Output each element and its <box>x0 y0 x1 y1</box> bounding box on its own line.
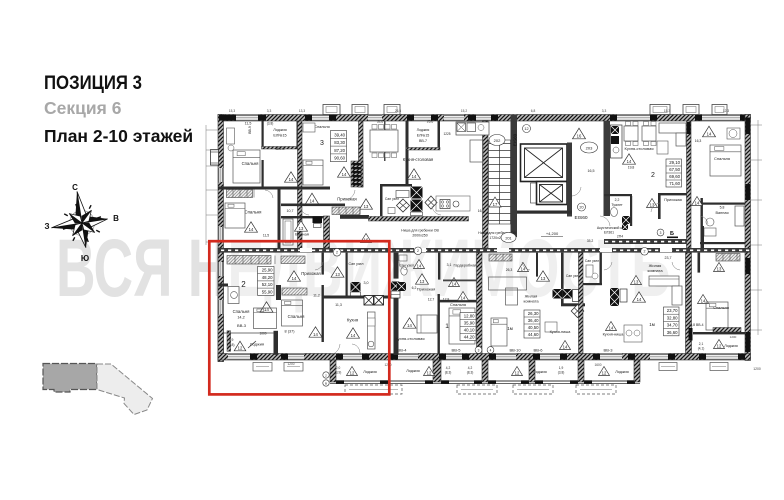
svg-text:Ю: Ю <box>81 254 89 263</box>
svg-text:Прихожая: Прихожая <box>664 198 682 202</box>
svg-text:12: 12 <box>427 370 432 375</box>
svg-text:Туалет: Туалет <box>611 203 623 207</box>
svg-text:Сан узел: Сан узел <box>349 262 364 266</box>
svg-text:Прихожая: Прихожая <box>417 287 436 292</box>
svg-text:35,2: 35,2 <box>587 239 594 243</box>
svg-text:(3,8): (3,8) <box>267 122 274 126</box>
svg-text:14: 14 <box>310 199 315 204</box>
svg-text:23,7: 23,7 <box>665 256 672 260</box>
svg-text:36,40: 36,40 <box>528 318 539 323</box>
svg-text:12,80: 12,80 <box>464 314 475 319</box>
svg-text:комната: комната <box>647 268 663 273</box>
svg-text:Спальня: Спальня <box>233 309 250 314</box>
svg-text:40,10: 40,10 <box>464 328 475 333</box>
svg-text:16: 16 <box>577 134 582 139</box>
svg-text:ВВ-8: ВВ-8 <box>276 146 286 151</box>
svg-text:комната: комната <box>523 299 539 304</box>
svg-text:(3,9): (3,9) <box>335 371 342 375</box>
svg-text:44,60: 44,60 <box>528 332 539 337</box>
svg-text:15,3: 15,3 <box>229 109 235 113</box>
svg-text:8 (37): 8 (37) <box>285 330 296 334</box>
svg-text:Ниша для гребенки ОВ: Ниша для гребенки ОВ <box>401 229 439 233</box>
svg-text:Прихожая: Прихожая <box>301 271 320 276</box>
svg-text:Спальня: Спальня <box>713 305 729 310</box>
svg-text:12: 12 <box>350 370 355 375</box>
svg-text:14: 14 <box>695 200 700 205</box>
svg-text:3: 3 <box>320 140 324 147</box>
svg-text:19,8: 19,8 <box>628 166 635 170</box>
svg-text:10,7: 10,7 <box>287 209 294 213</box>
svg-text:14: 14 <box>461 295 466 300</box>
svg-text:ВВ-4: ВВ-4 <box>398 348 408 353</box>
svg-text:Б: Б <box>670 231 674 237</box>
svg-text:203: 203 <box>586 146 593 151</box>
svg-text:71,60: 71,60 <box>669 181 680 186</box>
svg-text:14: 14 <box>701 298 706 303</box>
svg-text:Лоджия: Лоджия <box>417 128 430 132</box>
svg-text:Спальня: Спальня <box>450 302 466 307</box>
svg-text:6,8: 6,8 <box>531 109 536 113</box>
svg-text:2: 2 <box>644 250 646 254</box>
svg-text:EIS60: EIS60 <box>574 215 587 221</box>
svg-text:Жилая: Жилая <box>649 263 662 268</box>
svg-text:Лоджия: Лоджия <box>615 370 628 374</box>
svg-text:Сан узел: Сан узел <box>585 259 599 263</box>
svg-text:Кухня-столовая: Кухня-столовая <box>403 157 433 162</box>
svg-text:ЕЛ№15: ЕЛ№15 <box>273 134 286 138</box>
svg-text:4,2: 4,2 <box>468 366 473 370</box>
svg-text:(3,8): (3,8) <box>228 343 235 347</box>
svg-text:ВВ-10: ВВ-10 <box>509 348 521 353</box>
svg-text:З: З <box>44 222 49 231</box>
svg-text:2: 2 <box>417 249 419 253</box>
svg-text:ЕЛ361: ЕЛ361 <box>604 231 614 235</box>
svg-text:11,2: 11,2 <box>313 294 320 298</box>
svg-text:14: 14 <box>452 281 457 286</box>
svg-text:13: 13 <box>650 202 655 207</box>
svg-text:3: 3 <box>478 348 480 352</box>
svg-text:Прихожая: Прихожая <box>337 197 356 202</box>
svg-text:2,1: 2,1 <box>699 342 704 346</box>
svg-text:6,2: 6,2 <box>412 286 417 290</box>
svg-text:Ванная: Ванная <box>715 211 728 215</box>
svg-text:+4,200: +4,200 <box>546 231 559 236</box>
svg-text:1000: 1000 <box>259 332 266 336</box>
svg-text:3: 3 <box>660 231 662 235</box>
svg-text:Гардеробная: Гардеробная <box>454 264 477 268</box>
svg-text:Кухня-столовая: Кухня-столовая <box>624 146 653 151</box>
svg-text:Жилая: Жилая <box>525 294 538 299</box>
svg-text:С: С <box>72 183 78 192</box>
svg-text:69,60: 69,60 <box>669 174 680 179</box>
svg-text:(3,8): (3,8) <box>558 371 565 375</box>
svg-text:29,10: 29,10 <box>669 160 680 165</box>
svg-text:Лоджия: Лоджия <box>406 369 419 373</box>
svg-text:48,20: 48,20 <box>262 275 273 280</box>
svg-text:(4,1): (4,1) <box>698 347 705 351</box>
svg-text:12: 12 <box>717 343 722 348</box>
svg-text:3,1: 3,1 <box>447 263 452 267</box>
svg-text:Лоджия: Лоджия <box>273 128 286 132</box>
svg-text:14: 14 <box>292 276 297 281</box>
svg-text:13: 13 <box>335 272 340 277</box>
svg-text:3,3: 3,3 <box>267 109 272 113</box>
svg-text:Кухня-столовая: Кухня-столовая <box>395 336 424 341</box>
svg-text:52,10: 52,10 <box>262 282 273 287</box>
svg-text:ПОЗИЦИЯ 3: ПОЗИЦИЯ 3 <box>44 72 142 93</box>
svg-text:1200: 1200 <box>753 367 761 371</box>
svg-text:36,60: 36,60 <box>667 330 678 335</box>
svg-text:Ванная: Ванная <box>295 232 309 237</box>
svg-text:11,5: 11,5 <box>263 234 269 238</box>
svg-text:Кухня: Кухня <box>347 318 358 323</box>
svg-text:14: 14 <box>412 174 417 179</box>
svg-text:20: 20 <box>579 205 583 209</box>
svg-text:Сан узел: Сан узел <box>566 274 580 278</box>
svg-text:35,90: 35,90 <box>464 321 475 326</box>
svg-text:2: 2 <box>336 251 338 255</box>
svg-text:14: 14 <box>521 266 526 271</box>
svg-text:17: 17 <box>493 202 498 207</box>
svg-text:Лоджия: Лоджия <box>363 370 376 374</box>
svg-text:Спальня: Спальня <box>714 156 730 161</box>
svg-text:14: 14 <box>707 132 712 137</box>
svg-text:ВВ-3: ВВ-3 <box>237 323 247 328</box>
svg-text:14: 14 <box>249 227 254 232</box>
svg-text:3,0: 3,0 <box>364 281 369 285</box>
svg-text:26,3: 26,3 <box>506 268 513 272</box>
svg-text:1200: 1200 <box>730 335 737 339</box>
svg-text:13: 13 <box>420 279 425 284</box>
svg-text:(8,3): (8,3) <box>445 371 452 375</box>
svg-text:14: 14 <box>417 263 422 268</box>
svg-text:ВВ-7: ВВ-7 <box>419 139 427 143</box>
svg-text:201: 201 <box>505 237 511 241</box>
svg-text:2000х250: 2000х250 <box>412 234 427 238</box>
svg-text:13: 13 <box>541 276 546 281</box>
svg-text:14: 14 <box>289 177 294 182</box>
svg-text:25,90: 25,90 <box>262 268 273 273</box>
svg-text:12,3: 12,3 <box>723 109 729 113</box>
svg-text:26,6: 26,6 <box>395 109 401 113</box>
svg-text:ВВ-5: ВВ-5 <box>452 348 462 353</box>
svg-text:(8,3): (8,3) <box>467 371 474 375</box>
svg-text:13: 13 <box>717 266 722 271</box>
svg-text:13,3: 13,3 <box>299 109 305 113</box>
svg-text:5,8: 5,8 <box>720 206 725 210</box>
svg-text:1м: 1м <box>507 326 513 331</box>
svg-text:ВВ-6: ВВ-6 <box>534 348 544 353</box>
svg-text:1600: 1600 <box>594 363 601 367</box>
svg-text:ВВ-9: ВВ-9 <box>248 126 252 134</box>
svg-text:12,8: 12,8 <box>443 298 450 302</box>
svg-text:12,7: 12,7 <box>428 298 435 302</box>
svg-text:16,7: 16,7 <box>478 209 485 213</box>
svg-text:14: 14 <box>407 323 412 328</box>
svg-text:Секция 6: Секция 6 <box>44 98 122 118</box>
svg-text:4,2: 4,2 <box>446 366 451 370</box>
svg-text:12: 12 <box>524 127 528 131</box>
svg-text:13: 13 <box>364 204 369 209</box>
svg-text:26,6: 26,6 <box>427 120 434 124</box>
svg-text:4: 4 <box>490 348 492 352</box>
svg-text:14: 14 <box>637 297 642 302</box>
svg-text:ЕЛ№15: ЕЛ№15 <box>417 134 430 138</box>
svg-text:1,9: 1,9 <box>559 366 564 370</box>
svg-text:14: 14 <box>342 172 347 177</box>
svg-text:1м: 1м <box>649 322 655 327</box>
svg-text:В: В <box>325 381 327 385</box>
svg-text:11,5: 11,5 <box>245 122 252 126</box>
svg-text:Спальня: Спальня <box>288 314 305 319</box>
svg-text:2П4: 2П4 <box>617 235 623 239</box>
svg-text:2,2: 2,2 <box>615 198 620 202</box>
svg-text:2: 2 <box>651 172 655 179</box>
svg-text:32,80: 32,80 <box>667 315 678 320</box>
svg-text:14,2: 14,2 <box>237 316 244 320</box>
svg-text:90,60: 90,60 <box>334 156 345 161</box>
svg-text:202: 202 <box>494 138 501 143</box>
svg-text:Лоджия: Лоджия <box>533 370 546 374</box>
svg-text:11,3: 11,3 <box>335 303 342 307</box>
svg-text:23,70: 23,70 <box>667 308 678 313</box>
svg-text:40,50: 40,50 <box>528 325 539 330</box>
svg-text:3,3: 3,3 <box>602 109 607 113</box>
svg-text:87,20: 87,20 <box>334 148 345 153</box>
svg-text:16,5: 16,5 <box>588 169 595 173</box>
svg-text:39,40: 39,40 <box>334 132 345 137</box>
svg-text:Спальня: Спальня <box>242 161 259 166</box>
svg-text:15,8 ВВ-4: 15,8 ВВ-4 <box>688 323 703 327</box>
svg-text:Кухня-ниша: Кухня-ниша <box>603 333 625 337</box>
svg-text:26,30: 26,30 <box>528 311 539 316</box>
svg-text:План 2-10 этажей: План 2-10 этажей <box>44 126 193 146</box>
svg-text:14: 14 <box>609 325 614 330</box>
svg-text:12: 12 <box>602 370 607 375</box>
svg-text:32,6: 32,6 <box>377 120 384 124</box>
svg-text:Спальня: Спальня <box>314 125 329 129</box>
svg-text:14: 14 <box>563 344 568 349</box>
svg-text:15,3: 15,3 <box>664 109 670 113</box>
svg-text:83,30: 83,30 <box>334 140 345 145</box>
svg-text:12: 12 <box>238 346 243 351</box>
svg-text:Лоджия: Лоджия <box>250 342 264 347</box>
svg-text:2,0: 2,0 <box>336 366 341 370</box>
svg-text:ВВ-3: ВВ-3 <box>604 348 614 353</box>
svg-text:Лоджия: Лоджия <box>724 344 737 348</box>
svg-text:1: 1 <box>445 323 449 330</box>
svg-text:1225: 1225 <box>443 132 450 136</box>
svg-text:2: 2 <box>241 280 246 289</box>
svg-text:34,70: 34,70 <box>667 323 678 328</box>
svg-text:1,9: 1,9 <box>229 338 234 342</box>
svg-text:15,2: 15,2 <box>461 109 467 113</box>
svg-text:12: 12 <box>515 370 520 375</box>
svg-text:14: 14 <box>313 332 318 337</box>
svg-text:В: В <box>113 214 119 223</box>
svg-text:EIS60: EIS60 <box>513 133 518 146</box>
svg-text:67,50: 67,50 <box>669 167 680 172</box>
svg-text:44,20: 44,20 <box>464 335 475 340</box>
svg-text:13: 13 <box>299 226 304 231</box>
svg-text:13: 13 <box>634 279 639 284</box>
svg-text:55,90: 55,90 <box>262 289 273 294</box>
svg-text:16,3: 16,3 <box>695 139 702 143</box>
svg-text:Спальня: Спальня <box>245 210 262 215</box>
svg-text:14: 14 <box>627 159 632 164</box>
svg-text:14: 14 <box>351 333 356 338</box>
